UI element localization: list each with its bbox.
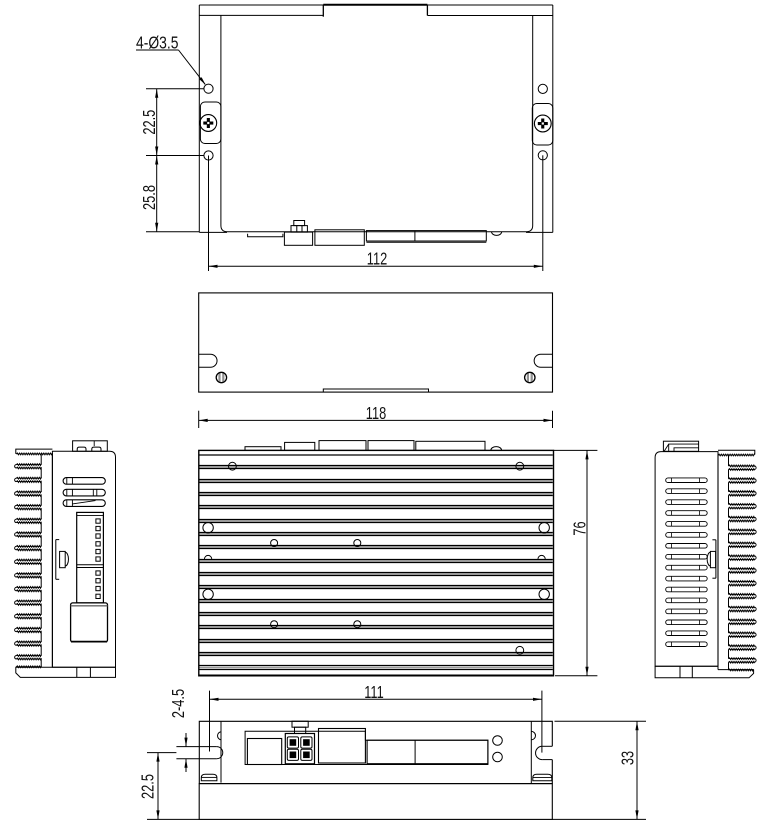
svg-text:76: 76 <box>571 521 591 535</box>
svg-text:118: 118 <box>366 404 386 424</box>
svg-text:22.5: 22.5 <box>140 110 160 135</box>
svg-text:2-4.5: 2-4.5 <box>169 689 189 718</box>
svg-text:4-Ø3.5: 4-Ø3.5 <box>136 34 179 53</box>
svg-text:25.8: 25.8 <box>140 185 160 210</box>
svg-text:112: 112 <box>367 249 387 269</box>
svg-text:22.5: 22.5 <box>138 774 158 799</box>
svg-text:33: 33 <box>618 751 638 765</box>
svg-text:111: 111 <box>364 683 383 703</box>
